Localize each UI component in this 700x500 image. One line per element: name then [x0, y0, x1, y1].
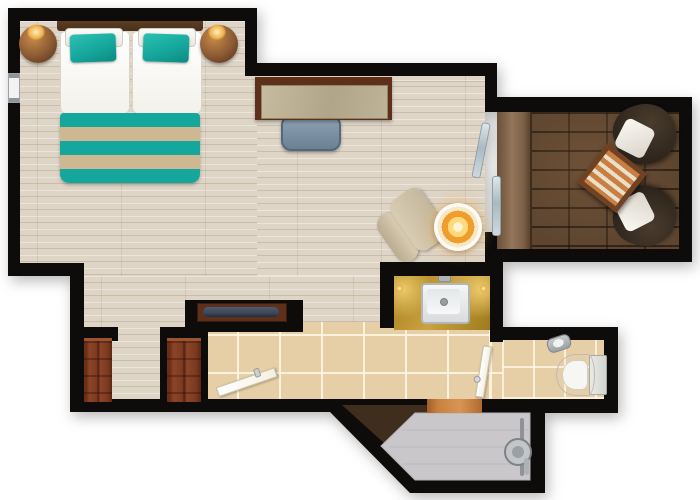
window-cap-bottom	[9, 98, 19, 102]
window	[8, 73, 20, 103]
balcony-right-wall	[679, 97, 692, 262]
bedside-lamp-right	[208, 24, 226, 40]
striped-foot-runner	[60, 113, 200, 183]
desk	[255, 77, 392, 120]
balcony-door-sill	[497, 112, 532, 249]
vanity-top-wall	[380, 262, 503, 276]
shower-valve-center	[512, 446, 524, 458]
vanity-left-wall	[380, 262, 394, 328]
closet-door-right	[167, 338, 201, 402]
toilet-door-handle	[473, 375, 481, 383]
counter-light-left	[396, 285, 403, 292]
toilet-paper-roll	[552, 338, 565, 349]
left-wall	[8, 8, 20, 276]
sliding-door-pane-closed	[492, 176, 501, 236]
mid-top-wall	[245, 63, 497, 76]
bedroom-top-wall	[8, 8, 257, 21]
hallway-tile-floor	[207, 322, 502, 402]
toilet-seat	[562, 360, 588, 390]
counter-light-right	[480, 285, 487, 292]
shower-threshold	[427, 399, 482, 413]
bottom-wall	[70, 399, 362, 412]
tv-console	[197, 303, 287, 322]
closet-door-left	[84, 338, 112, 402]
tv-console-top	[203, 307, 279, 317]
desk-top	[261, 85, 388, 119]
desk-chair	[281, 115, 341, 151]
pillow-teal-left	[70, 33, 117, 63]
bedside-lamp-left	[27, 24, 45, 40]
shower-handset	[524, 458, 529, 475]
sink-drain	[440, 298, 448, 306]
pillow-teal-right	[143, 33, 190, 63]
floor-plan	[0, 0, 700, 500]
illuminated-round-table	[434, 203, 482, 251]
window-cap-top	[9, 74, 19, 78]
floor-plan-silhouette	[0, 0, 700, 500]
